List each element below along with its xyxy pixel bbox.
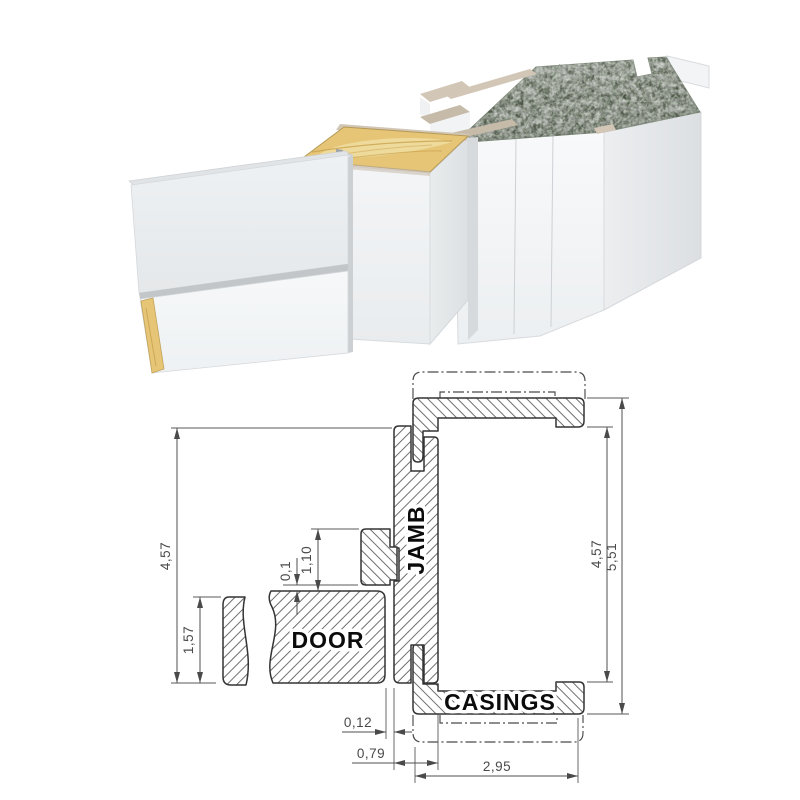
dim-jamb-depth: 0,79 <box>357 746 385 761</box>
wall-ledge-bottom <box>440 715 557 723</box>
casings-label: CASINGS <box>444 689 556 715</box>
dim-left-total: 4,57 <box>158 542 173 570</box>
diagram-canvas: 4,57 1,57 0,1 1,10 0,12 0,79 2,95 4,57 5… <box>0 0 800 800</box>
door-leaf-3d <box>129 151 353 373</box>
jamb-gap-shadow <box>468 137 478 340</box>
dim-right-total: 5,51 <box>604 543 619 571</box>
wall-phantom-top <box>413 372 585 399</box>
door-label: DOOR <box>292 627 365 653</box>
dim-door-thickness: 1,57 <box>181 626 196 654</box>
door-stop-section <box>361 529 397 585</box>
dim-casing-width: 2,95 <box>483 759 511 774</box>
dim-stop-offset: 1,10 <box>299 546 314 574</box>
door-frame-diagram: 4,57 1,57 0,1 1,10 0,12 0,79 2,95 4,57 5… <box>0 0 800 800</box>
casing-right-side-face <box>604 112 701 310</box>
dim-door-top-gap: 0,1 <box>278 561 293 581</box>
dim-door-jamb-gap: 0,12 <box>344 715 372 730</box>
cross-section: 4,57 1,57 0,1 1,10 0,12 0,79 2,95 4,57 5… <box>158 372 629 783</box>
wall-ledge-top <box>440 392 555 398</box>
render-3d <box>129 56 709 373</box>
leaf-gap-shadow <box>348 153 353 353</box>
jamb-label: JAMB <box>403 505 429 574</box>
door-edge-section <box>223 597 248 685</box>
dim-right-inner: 4,57 <box>589 540 604 568</box>
